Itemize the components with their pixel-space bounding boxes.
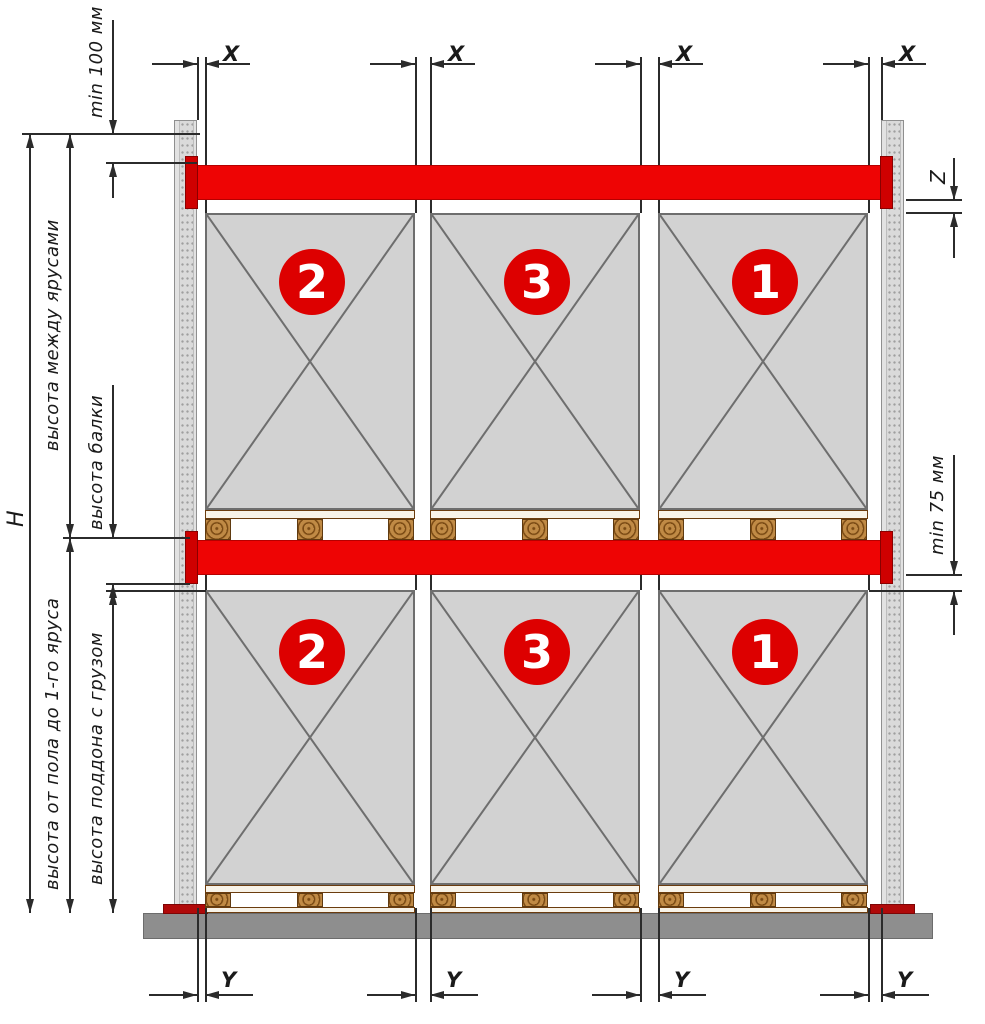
- pallet-deck-board: [205, 510, 415, 519]
- pallet: [430, 510, 640, 540]
- dim-line: [29, 134, 31, 913]
- dim-label-y: Y: [221, 968, 236, 992]
- dim-line: [112, 20, 114, 134]
- pallet-deck-board: [658, 885, 868, 893]
- dim-arrow: [205, 60, 219, 68]
- pallet-blocks: [430, 893, 640, 907]
- extension-line: [205, 57, 207, 165]
- dim-arrow: [66, 524, 74, 538]
- reference-line: [106, 162, 197, 164]
- extension-line: [415, 200, 417, 213]
- reference-line: [106, 590, 206, 592]
- dim-arrow: [66, 538, 74, 552]
- extension-line: [205, 575, 207, 590]
- upright-perforation-texture: [886, 121, 901, 904]
- dim-label-min-top-clearance: min 100 мм: [87, 16, 111, 118]
- dim-arrow: [881, 60, 895, 68]
- rack-upright-right: [881, 120, 904, 905]
- dim-arrow: [950, 186, 958, 200]
- middle-beam: [197, 540, 881, 575]
- pallet-blocks: [658, 519, 868, 540]
- dim-line: [112, 591, 114, 913]
- beam-connector: [185, 156, 198, 209]
- load-box-upper-center: 3: [430, 213, 640, 510]
- load-box-lower-center: 3: [430, 590, 640, 885]
- reference-line: [869, 590, 962, 592]
- load-box-lower-right: 1: [658, 590, 868, 885]
- floor-slab: [143, 913, 933, 939]
- extension-line: [415, 575, 417, 590]
- dim-label-y: Y: [674, 968, 689, 992]
- extension-line: [205, 200, 207, 213]
- dim-arrow: [658, 991, 672, 999]
- dim-label-z-gap: Z: [927, 158, 951, 196]
- dim-label-pallet-with-load: высота поддона с грузом: [87, 632, 111, 886]
- dim-line: [69, 538, 71, 913]
- load-number-badge: 1: [732, 619, 798, 685]
- dim-arrow: [658, 60, 672, 68]
- extension-line: [658, 57, 660, 165]
- extension-line: [868, 575, 870, 590]
- load-box-upper-left: 2: [205, 213, 415, 510]
- pallet: [658, 510, 868, 540]
- dim-arrow: [950, 213, 958, 227]
- extension-line: [430, 200, 432, 213]
- pallet-bottom-board: [430, 907, 640, 913]
- load-box-lower-left: 2: [205, 590, 415, 885]
- load-number-badge: 1: [732, 249, 798, 315]
- dim-arrow: [26, 134, 34, 148]
- extension-line: [658, 200, 660, 213]
- upright-perforation-texture: [179, 121, 194, 904]
- extension-line: [430, 908, 432, 1002]
- reference-line: [63, 537, 190, 539]
- extension-line: [640, 57, 642, 165]
- dim-label-x: X: [899, 42, 915, 66]
- dim-label-y: Y: [897, 968, 912, 992]
- pallet: [205, 510, 415, 540]
- top-beam: [197, 165, 881, 200]
- extension-line: [658, 908, 660, 1002]
- extension-line: [197, 908, 199, 1002]
- pallet-blocks: [205, 893, 415, 907]
- dim-label-total-height: H: [5, 496, 29, 540]
- pallet-bottom-board: [658, 907, 868, 913]
- load-number-badge: 2: [279, 619, 345, 685]
- dim-label-between-tiers: высота между ярусами: [43, 185, 67, 485]
- pallet: [205, 885, 415, 913]
- dim-arrow: [950, 591, 958, 605]
- dim-arrow: [26, 899, 34, 913]
- dim-arrow: [401, 60, 415, 68]
- extension-line: [640, 200, 642, 213]
- dim-arrow: [854, 991, 868, 999]
- dim-label-x: X: [448, 42, 464, 66]
- beam-connector: [880, 156, 893, 209]
- pallet-blocks: [430, 519, 640, 540]
- dim-arrow: [430, 60, 444, 68]
- dim-arrow: [66, 899, 74, 913]
- dim-arrow: [950, 561, 958, 575]
- dim-label-beam-height: высота балки: [87, 388, 111, 536]
- beam-connector: [880, 531, 893, 584]
- extension-line: [868, 57, 870, 165]
- base-plate-left: [163, 904, 208, 914]
- dim-label-y: Y: [446, 968, 461, 992]
- dim-arrow: [109, 899, 117, 913]
- dim-label-floor-to-first-tier: высота от пола до 1-го яруса: [43, 578, 67, 910]
- extension-line: [197, 57, 199, 120]
- rack-elevation-diagram: 2 3 1 2 3 1: [0, 0, 985, 1024]
- extension-line: [881, 908, 883, 1002]
- pallet: [430, 885, 640, 913]
- dim-arrow: [401, 991, 415, 999]
- dim-arrow: [66, 134, 74, 148]
- dim-arrow: [109, 591, 117, 605]
- load-number-badge: 3: [504, 619, 570, 685]
- rack-upright-left: [174, 120, 197, 905]
- pallet-blocks: [205, 519, 415, 540]
- dim-arrow: [205, 991, 219, 999]
- dim-line: [112, 385, 114, 538]
- extension-line: [640, 575, 642, 590]
- extension-line: [415, 908, 417, 1002]
- dim-arrow: [854, 60, 868, 68]
- dim-arrow: [430, 991, 444, 999]
- extension-line: [640, 908, 642, 1002]
- pallet-bottom-board: [205, 907, 415, 913]
- dim-arrow: [109, 163, 117, 177]
- load-box-upper-right: 1: [658, 213, 868, 510]
- pallet: [658, 885, 868, 913]
- pallet-deck-board: [430, 510, 640, 519]
- pallet-deck-board: [205, 885, 415, 893]
- dim-arrow: [626, 991, 640, 999]
- extension-line: [430, 575, 432, 590]
- extension-line: [868, 200, 870, 213]
- dim-label-x: X: [676, 42, 692, 66]
- dim-arrow: [183, 991, 197, 999]
- reference-line: [106, 583, 190, 585]
- extension-line: [868, 908, 870, 1002]
- dim-arrow: [626, 60, 640, 68]
- beam-connector: [185, 531, 198, 584]
- load-number-badge: 3: [504, 249, 570, 315]
- dim-arrow: [183, 60, 197, 68]
- pallet-deck-board: [658, 510, 868, 519]
- dim-label-x: X: [223, 42, 239, 66]
- dim-label-min-load-clearance: min 75 мм: [928, 450, 952, 560]
- dim-line: [69, 134, 71, 538]
- dim-arrow: [109, 120, 117, 134]
- base-plate-right: [870, 904, 915, 914]
- extension-line: [658, 575, 660, 590]
- extension-line: [430, 57, 432, 165]
- dim-line: [953, 455, 955, 575]
- extension-line: [415, 57, 417, 165]
- pallet-blocks: [658, 893, 868, 907]
- load-number-badge: 2: [279, 249, 345, 315]
- pallet-deck-board: [430, 885, 640, 893]
- extension-line: [205, 908, 207, 1002]
- dim-arrow: [881, 991, 895, 999]
